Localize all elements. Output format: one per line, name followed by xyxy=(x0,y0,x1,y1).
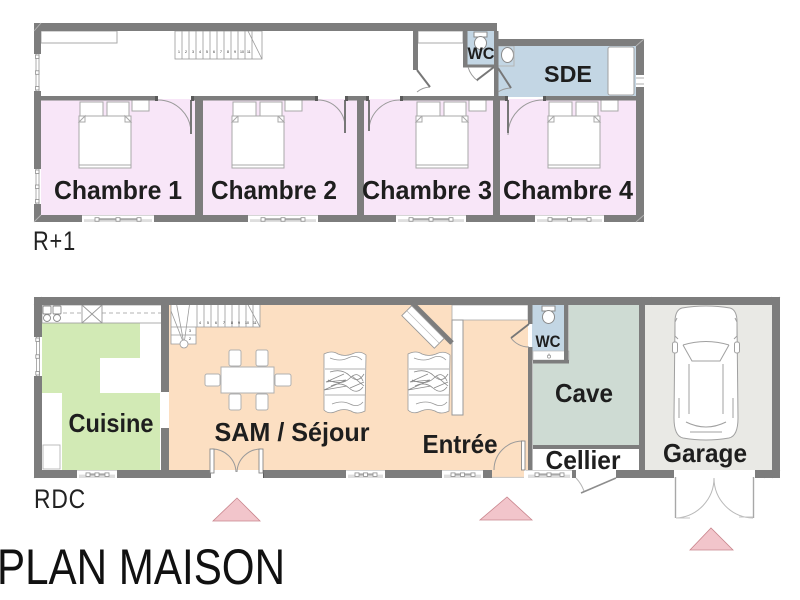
svg-text:5: 5 xyxy=(207,321,209,325)
svg-text:2: 2 xyxy=(185,50,187,54)
svg-text:Chambre 4: Chambre 4 xyxy=(503,175,634,205)
svg-text:Chambre 3: Chambre 3 xyxy=(362,175,492,205)
svg-text:6: 6 xyxy=(215,321,217,325)
svg-text:11: 11 xyxy=(253,321,257,325)
svg-text:4: 4 xyxy=(199,321,201,325)
svg-text:PLAN MAISON: PLAN MAISON xyxy=(0,539,285,595)
svg-text:3: 3 xyxy=(192,50,194,54)
svg-text:7: 7 xyxy=(220,50,222,54)
svg-text:9: 9 xyxy=(238,321,240,325)
svg-text:Chambre 2: Chambre 2 xyxy=(211,175,337,205)
svg-text:WC: WC xyxy=(536,332,561,351)
svg-text:Entrée: Entrée xyxy=(423,429,498,459)
svg-text:3: 3 xyxy=(189,329,191,333)
svg-text:2: 2 xyxy=(189,337,191,341)
svg-text:8: 8 xyxy=(227,50,229,54)
svg-text:SAM / Séjour: SAM / Séjour xyxy=(215,417,370,447)
svg-text:Cuisine: Cuisine xyxy=(69,408,154,438)
svg-text:7: 7 xyxy=(223,321,225,325)
svg-text:10: 10 xyxy=(245,321,249,325)
svg-text:10: 10 xyxy=(240,50,244,54)
svg-text:Garage: Garage xyxy=(663,438,747,468)
svg-text:Cellier: Cellier xyxy=(546,445,621,475)
svg-text:5: 5 xyxy=(206,50,208,54)
svg-text:1: 1 xyxy=(178,50,180,54)
svg-text:SDE: SDE xyxy=(544,61,592,87)
svg-text:11: 11 xyxy=(247,50,251,54)
svg-text:Chambre 1: Chambre 1 xyxy=(54,175,182,205)
svg-text:4: 4 xyxy=(199,50,201,54)
svg-text:RDC: RDC xyxy=(34,484,86,514)
svg-text:Cave: Cave xyxy=(555,378,613,408)
svg-text:6: 6 xyxy=(213,50,215,54)
svg-text:8: 8 xyxy=(231,321,233,325)
svg-text:R+1: R+1 xyxy=(33,226,76,256)
svg-text:9: 9 xyxy=(234,50,236,54)
svg-text:WC: WC xyxy=(468,44,495,63)
